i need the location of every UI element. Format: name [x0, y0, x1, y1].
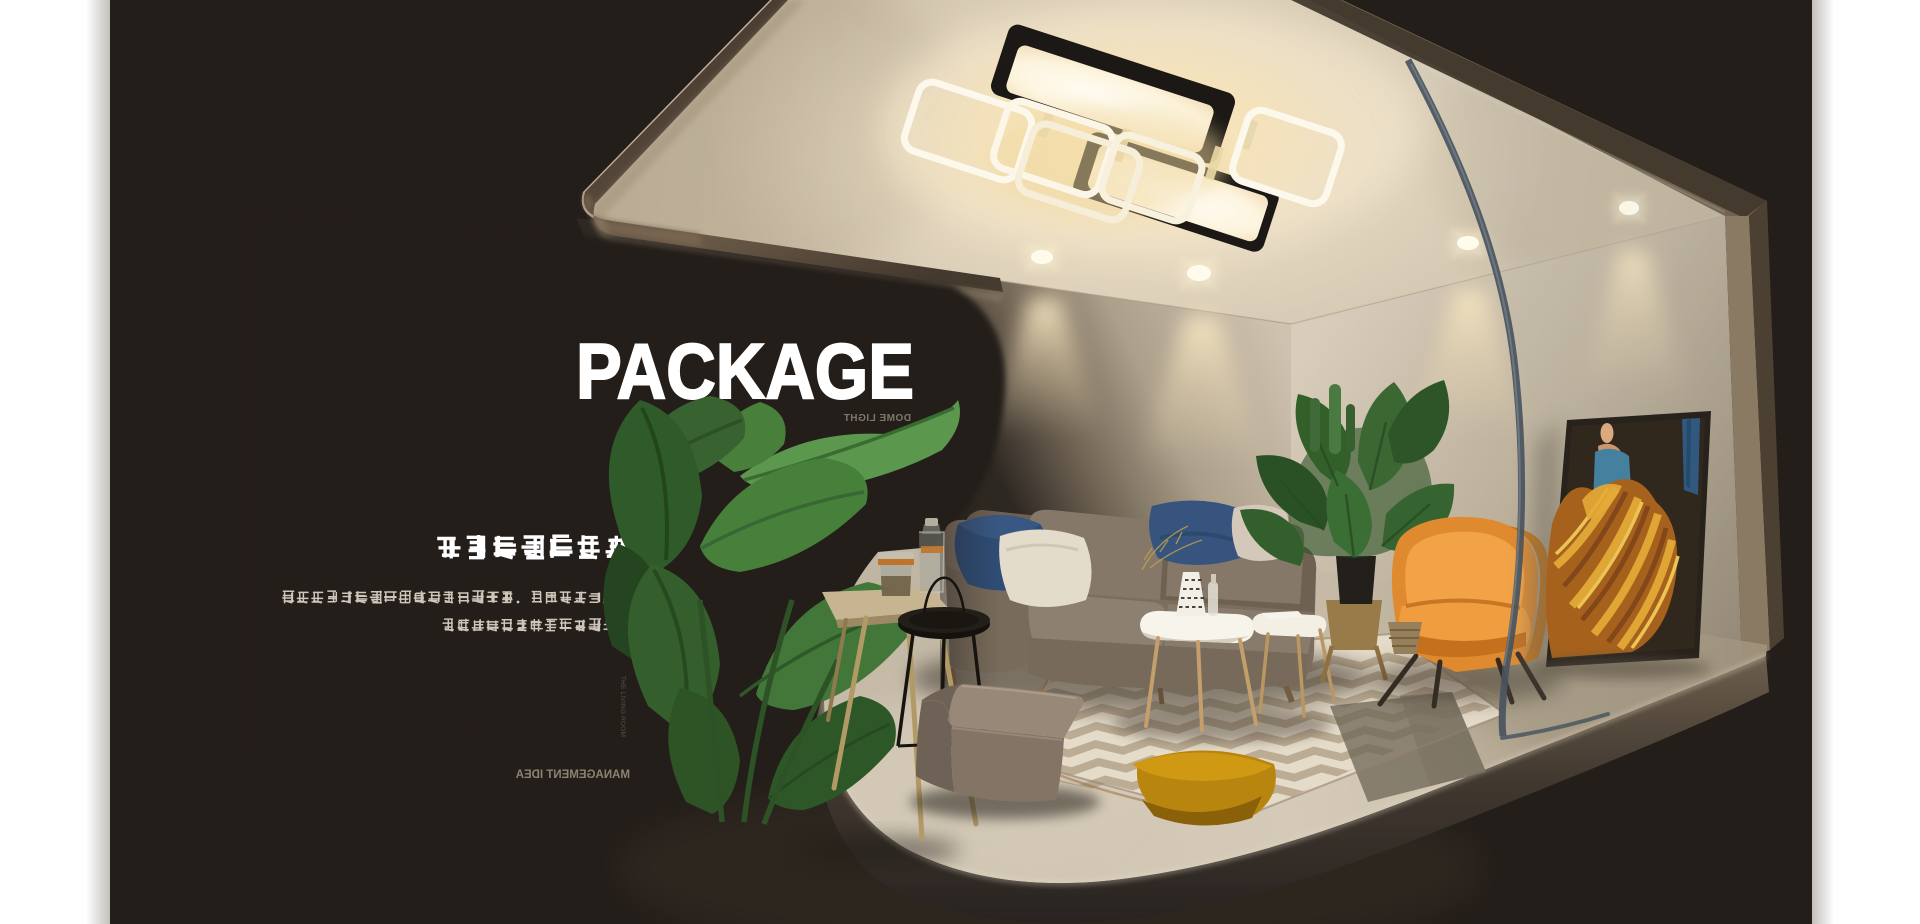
svg-text:PACKAGE: PACKAGE [576, 327, 914, 415]
svg-text:DOME LIGHT: DOME LIGHT [843, 413, 911, 424]
svg-text:THE LIVING ROOM: THE LIVING ROOM [619, 676, 626, 737]
svg-text:MANAGEMENT IDEA: MANAGEMENT IDEA [516, 769, 630, 781]
